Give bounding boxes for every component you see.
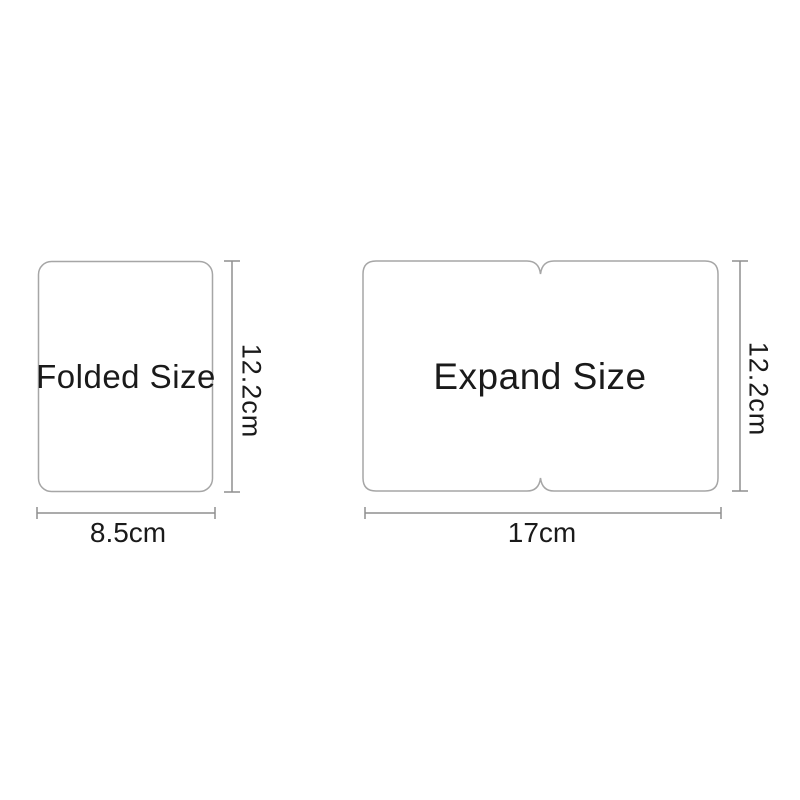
folded-width-value: 8.5cm: [90, 517, 166, 549]
expand-size-label: Expand Size: [433, 356, 646, 398]
diagram-shapes: [0, 0, 800, 800]
folded-size-label: Folded Size: [36, 358, 216, 396]
expand-height-value: 12.2cm: [743, 342, 774, 437]
dimension-diagram: Folded Size Expand Size 8.5cm 17cm 12.2c…: [0, 0, 800, 800]
expand-width-value: 17cm: [508, 517, 576, 549]
folded-height-value: 12.2cm: [236, 344, 267, 439]
